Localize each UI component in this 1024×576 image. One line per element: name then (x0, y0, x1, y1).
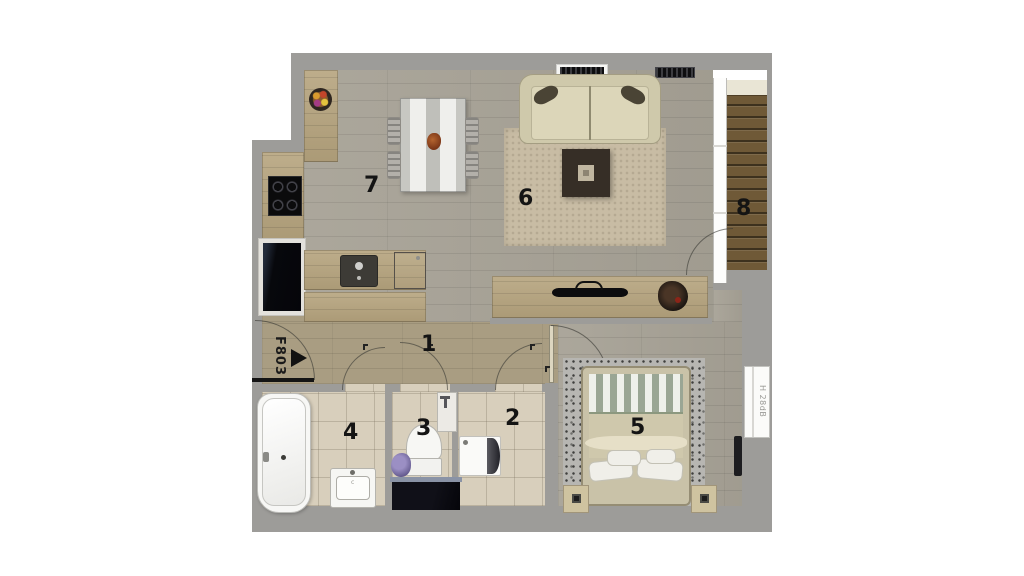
floor-plan: F803 c H 28dB 1 2 3 4 5 6 7 (0, 0, 1024, 576)
room-label-bathroom: 4 (343, 422, 358, 444)
room-label-living: 6 (518, 188, 533, 210)
nightstand-lamp-left (572, 494, 581, 503)
room-label-hallway: 1 (421, 334, 436, 356)
balcony-window-mullion-1 (713, 145, 727, 147)
bedroom-radiator (734, 436, 742, 476)
balcony-deck (727, 80, 767, 270)
bathtub-faucet (263, 452, 269, 462)
bed-pillow-3 (607, 450, 641, 466)
entrance-arrow-icon (291, 349, 307, 367)
balcony-header (727, 80, 767, 96)
plant (658, 281, 688, 311)
room-label-balcony: 8 (736, 198, 751, 220)
fridge (263, 243, 301, 311)
toilet-cistern (406, 458, 442, 476)
room-label-kitchen: 7 (364, 175, 379, 197)
kitchen-counter-top (304, 70, 338, 162)
cabinet-knob (416, 256, 420, 260)
kitchen-counter-lower-2 (304, 292, 426, 322)
nightstand-lamp-right (700, 494, 709, 503)
dining-chair-2 (387, 151, 401, 179)
room-label-storage: 2 (505, 408, 520, 430)
washer-dial (463, 440, 468, 445)
bedroom-floor-patch (713, 290, 742, 322)
door-hinge-mark-1 (363, 344, 368, 350)
wall-storage-bedroom (545, 383, 558, 508)
balcony-window-mullion-2 (713, 212, 727, 214)
bed-pillow-4 (646, 449, 676, 464)
door-hinge-mark-4 (545, 366, 550, 372)
entrance-door-code: F803 (272, 336, 287, 376)
wall-balcony-right (767, 70, 772, 283)
wall-bath-wc (385, 388, 392, 508)
wall-vent-2 (655, 67, 695, 78)
dining-chair-3 (465, 117, 479, 145)
window-acoustic-label: H 28dB (758, 385, 767, 417)
wc-plant (391, 453, 411, 477)
bed-blanket (589, 374, 683, 414)
kitchen-cabinet (394, 252, 426, 289)
fruit-bowl (309, 88, 332, 111)
vanity-panel (392, 482, 460, 510)
wall-hall-top (490, 318, 712, 324)
room-label-bedroom: 5 (630, 417, 645, 439)
bathtub-drain (281, 455, 286, 460)
dining-chair-4 (465, 151, 479, 179)
wc-faucet-spout (440, 396, 450, 399)
tv-handle (575, 281, 603, 290)
room-label-wc: 3 (416, 418, 431, 440)
wall-left-upper (291, 53, 304, 152)
cooktop (268, 176, 302, 216)
bath-sink-mark: c (351, 479, 354, 486)
bath-sink-faucet (350, 470, 355, 475)
dining-chair-1 (387, 117, 401, 145)
door-hinge-mark-3 (530, 344, 535, 350)
coffee-table-inset (578, 165, 594, 181)
sofa-divider (589, 86, 591, 140)
kitchen-sink (340, 255, 378, 287)
bedroom-window-mullion (752, 367, 754, 437)
wall-top (291, 53, 772, 70)
